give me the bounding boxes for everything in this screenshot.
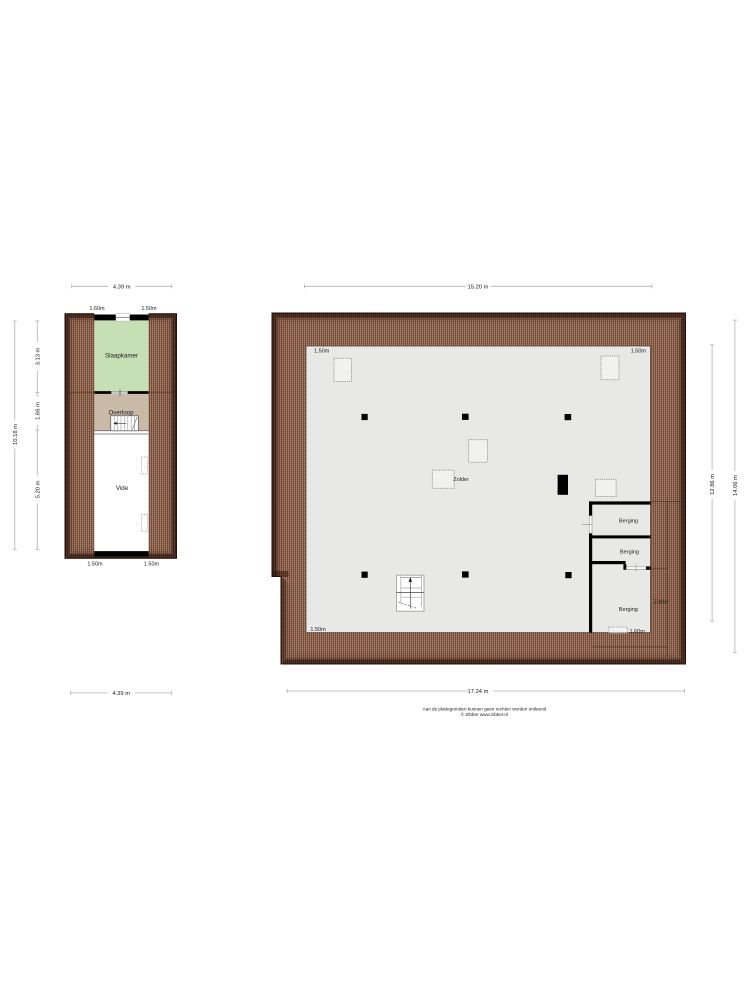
svg-text:1.50m: 1.50m xyxy=(144,562,160,568)
svg-text:1.50m: 1.50m xyxy=(314,348,330,354)
svg-text:3.13 m: 3.13 m xyxy=(35,347,41,365)
svg-text:1.60m: 1.60m xyxy=(630,629,646,635)
svg-text:Overloop: Overloop xyxy=(108,409,134,416)
svg-text:1.66 m: 1.66 m xyxy=(35,402,41,420)
svg-text:1.60m: 1.60m xyxy=(89,306,105,312)
svg-text:Berging: Berging xyxy=(620,550,639,556)
svg-text:1.50m: 1.50m xyxy=(631,348,647,354)
svg-text:Aan de plattegronden kunnen ge: Aan de plattegronden kunnen geen rechten… xyxy=(423,707,547,712)
svg-text:Zolder: Zolder xyxy=(654,600,670,606)
svg-text:4.39 m: 4.39 m xyxy=(112,691,130,697)
svg-text:1.50m: 1.50m xyxy=(141,306,157,312)
svg-text:1.50m: 1.50m xyxy=(87,562,103,568)
svg-text:Berging: Berging xyxy=(619,518,638,524)
svg-text:10.18 m: 10.18 m xyxy=(13,424,19,445)
svg-text:Vide: Vide xyxy=(116,485,129,492)
svg-text:4.39 m: 4.39 m xyxy=(113,285,131,291)
svg-text:Slaapkamer: Slaapkamer xyxy=(105,353,138,360)
svg-text:5.20 m: 5.20 m xyxy=(35,480,41,498)
svg-text:15.20 m: 15.20 m xyxy=(468,285,489,291)
svg-text:14.06 m: 14.06 m xyxy=(733,475,739,496)
svg-text:Berging: Berging xyxy=(619,607,638,613)
svg-text:Zolder: Zolder xyxy=(453,477,469,483)
svg-text:1.50m: 1.50m xyxy=(310,627,326,633)
svg-text:17.24 m: 17.24 m xyxy=(468,689,489,695)
svg-text:© Zibber www.zibber.nl: © Zibber www.zibber.nl xyxy=(461,711,508,717)
svg-text:12.86 m: 12.86 m xyxy=(710,474,716,495)
